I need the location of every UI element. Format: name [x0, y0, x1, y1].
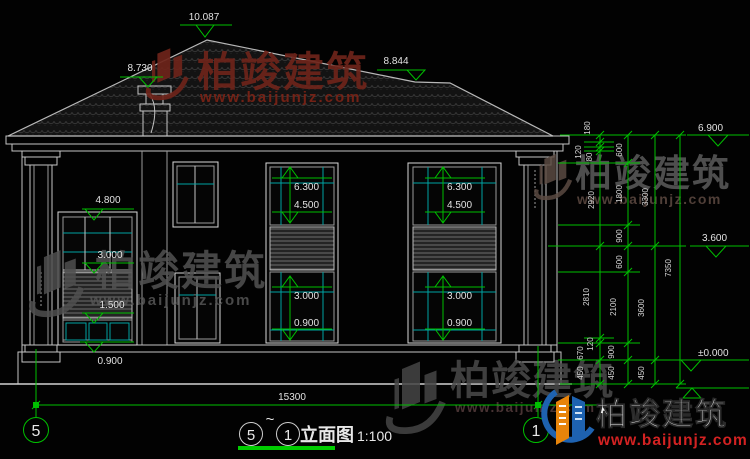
elevation-value: 8.730 — [127, 63, 152, 74]
elevation-value: 0.900 — [294, 318, 319, 329]
title-tilde: ~ — [266, 411, 275, 428]
elevation-value: ±0.000 — [698, 348, 729, 359]
dim-value: 450 — [576, 366, 585, 380]
elevation-mark-floor2: 3.600 — [690, 233, 749, 257]
elevation-value: 3.000 — [294, 291, 319, 302]
dim-value: 7350 — [664, 259, 673, 277]
watermark-right: 柏竣建筑 www.baijunjz.com — [536, 152, 731, 207]
dim-value: 450 — [637, 366, 646, 380]
drawing-title: 立面图 — [300, 424, 354, 445]
dim-value: 120 — [574, 145, 583, 159]
elevation-value: 6.300 — [447, 182, 472, 193]
axis-bubble-left: 5 — [24, 418, 49, 443]
dim-value: 180 — [583, 121, 592, 135]
title-underline — [238, 446, 335, 450]
elevation-value: 0.900 — [447, 318, 472, 329]
axis-number: 1 — [532, 423, 541, 440]
title-axis-start: 5 — [247, 427, 255, 444]
overall-width-value: 15300 — [278, 392, 306, 403]
elevation-value: 6.900 — [698, 123, 723, 134]
elevation-value: 3.000 — [97, 250, 122, 261]
dim-value: 600 — [615, 143, 624, 157]
dim-value: 2810 — [582, 288, 591, 306]
elevation-value: 4.500 — [294, 200, 319, 211]
elevation-mark-zero: ±0.000 — [676, 348, 749, 371]
dim-value: 2920 — [587, 191, 596, 209]
baijun-logo-icon — [32, 250, 81, 314]
dim-value: 2100 — [609, 298, 618, 316]
watermark-brand-text: 柏竣建筑 — [450, 359, 614, 403]
elevation-value: 3.000 — [447, 291, 472, 302]
dim-value: 120 — [586, 337, 595, 351]
title-block: 5 ~ 1 立面图 1:100 — [238, 411, 392, 450]
elevation-value: 10.087 — [189, 12, 220, 23]
elevation-value: 0.900 — [97, 356, 122, 367]
elevation-value: 6.300 — [294, 182, 319, 193]
dim-value: 670 — [576, 346, 585, 360]
baijun-logo-icon — [389, 362, 442, 431]
title-axis-end: 1 — [284, 427, 292, 444]
dim-value: 900 — [607, 345, 616, 359]
dim-value: 900 — [615, 229, 624, 243]
logo-url-text: www.baijunjz.com — [597, 432, 748, 449]
elevation-mark-eave: 6.900 — [687, 123, 749, 146]
elevation-value: 4.500 — [447, 200, 472, 211]
elevation-mark-bay-sill: 0.900 — [80, 342, 134, 367]
dim-value: 450 — [607, 366, 616, 380]
eave-fascia — [6, 136, 569, 144]
baijun-logo-icon — [536, 154, 570, 198]
watermark-brand-text: 柏竣建筑 — [575, 152, 731, 194]
dim-value: 3600 — [637, 299, 646, 317]
dim-value: 3300 — [641, 188, 650, 206]
elevation-mark-peak: 10.087 — [180, 12, 232, 37]
logo-brand-text: 柏竣建筑 — [596, 397, 728, 432]
dim-value: 80 — [585, 152, 594, 161]
axis-number: 5 — [32, 423, 41, 440]
drawing-canvas: 柏竣建筑 www.baijunjz.com 柏竣建筑 www.baijunjz.… — [0, 0, 750, 459]
elevation-value: 4.800 — [95, 195, 120, 206]
logo-building-orange — [556, 395, 569, 445]
right-spandrel-hatch — [413, 227, 496, 270]
elevation-value: 8.844 — [383, 56, 408, 67]
drawing-scale: 1:100 — [357, 428, 392, 444]
center-spandrel-hatch — [270, 227, 334, 270]
cad-elevation-drawing: 柏竣建筑 www.baijunjz.com 柏竣建筑 www.baijunjz.… — [0, 0, 750, 459]
logo-baijun: 柏竣建筑 www.baijunjz.com — [544, 392, 748, 449]
elevation-value: 3.600 — [702, 233, 727, 244]
dim-value: 600 — [615, 255, 624, 269]
dim-value: 1800 — [615, 185, 624, 203]
window-small-upper — [173, 162, 218, 227]
elevation-value: 1.500 — [99, 300, 124, 311]
watermark-url-text: www.baijunjz.com — [199, 89, 361, 106]
